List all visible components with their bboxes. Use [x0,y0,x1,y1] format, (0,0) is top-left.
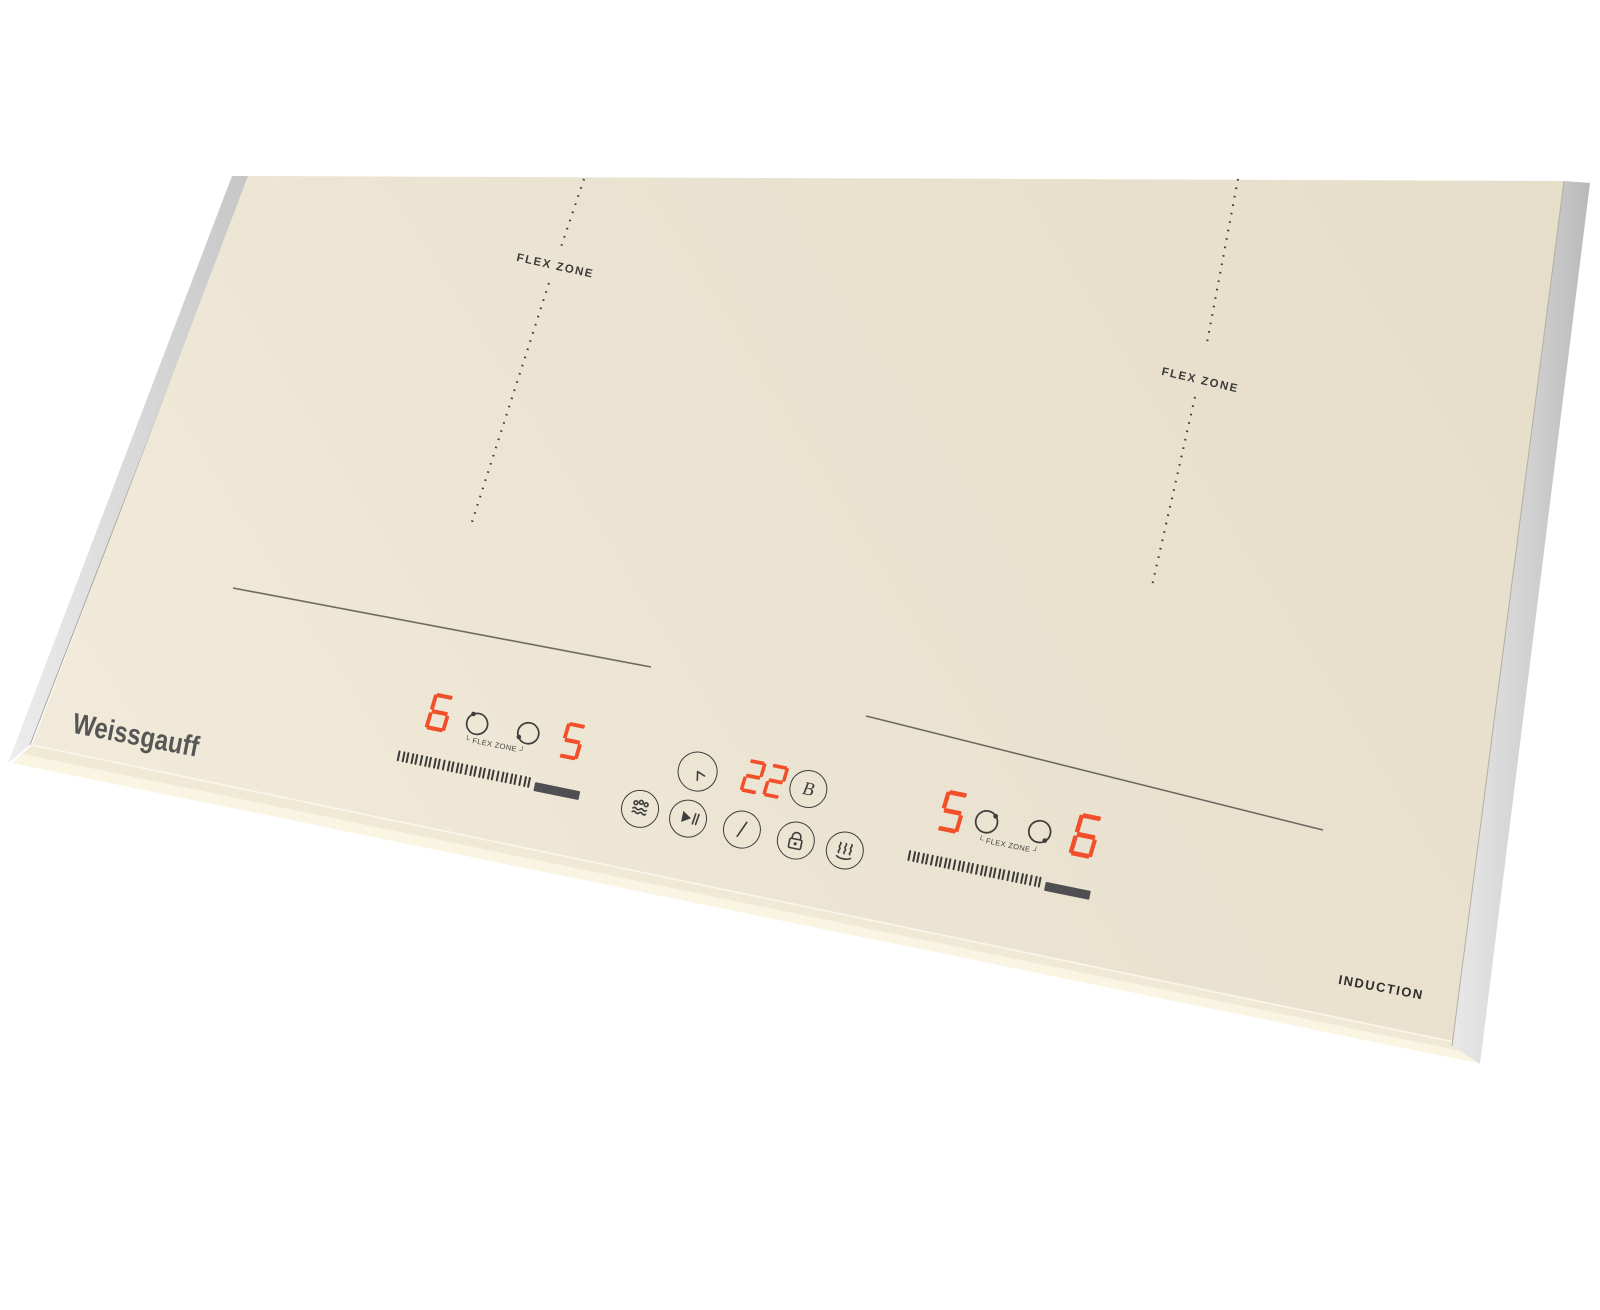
left-slider-ticks [397,750,532,788]
ring-with-dot-icon [970,805,1003,838]
cooktop-panel [0,0,1600,1310]
left-slider-level-bar [534,782,581,800]
clock-icon [675,748,720,795]
steam-over-dish-icon [823,828,866,872]
right-front-burner-select-button[interactable] [1023,815,1056,848]
ring-with-dot-icon [1023,815,1056,848]
child-lock-button[interactable] [773,818,818,863]
bubbles-over-waves-icon [619,787,662,831]
timer-button[interactable] [674,748,721,795]
power-button[interactable] [720,807,765,852]
padlock-icon [774,818,817,862]
power-slash-icon [721,807,764,851]
timer-display [740,758,788,800]
cooktop-product-photo: Weissgauff INDUCTION FLEX ZONE FLEX ZONE… [0,0,1600,1310]
start-pause-button[interactable] [666,796,711,841]
right-power-slider[interactable] [907,850,1092,900]
play-pause-icon [667,796,710,840]
right-slider-ticks [907,850,1042,888]
letter-b-icon: B [801,779,816,800]
right-rear-level-display [937,789,968,835]
right-slider-level-bar [1044,882,1091,900]
right-rear-burner-select-button[interactable] [970,805,1003,838]
left-front-level-display [559,721,587,761]
keep-warm-button[interactable] [822,828,867,873]
